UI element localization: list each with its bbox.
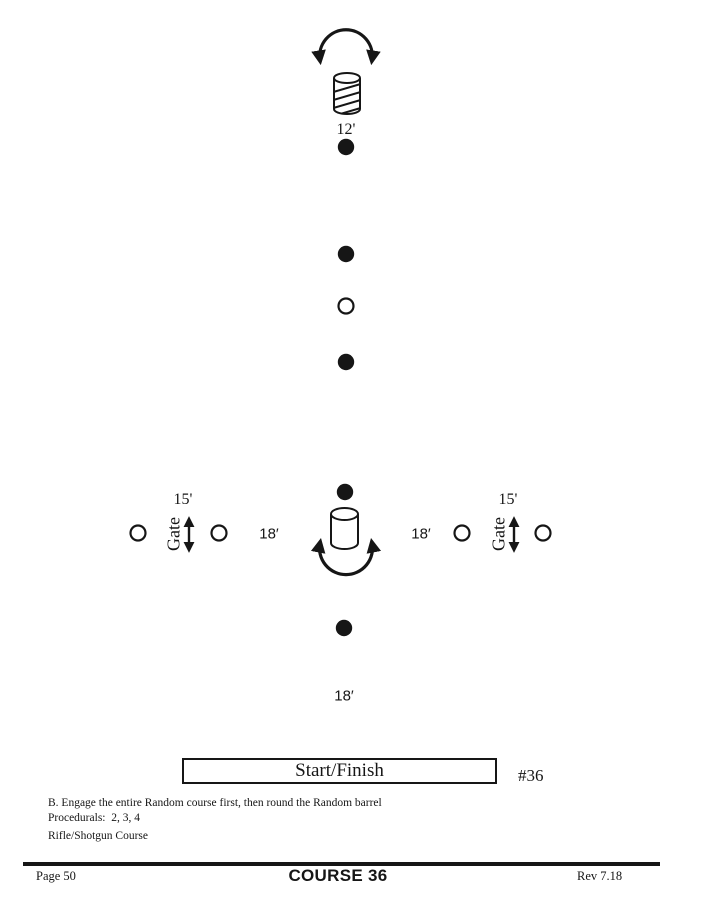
note-procedurals: Procedurals: 2, 3, 4 [48, 812, 140, 824]
left-gate-label: Gate [164, 517, 185, 551]
pole-marker-dot [338, 246, 354, 262]
gate-post [131, 526, 146, 541]
pole-marker-dot [337, 484, 353, 500]
course-number-label: #36 [518, 766, 544, 786]
start-finish-label: Start/Finish [295, 760, 384, 781]
left-spacing-label: 18′ [259, 526, 279, 543]
footer-course-title: COURSE 36 [288, 866, 387, 886]
gate-post [455, 526, 470, 541]
top-barrel-distance-label: 12' [337, 121, 356, 139]
gate-post [536, 526, 551, 541]
rotation-arrow-top-icon [320, 30, 373, 60]
bottom-spacing-label: 18′ [334, 688, 354, 705]
right-gate-width-label: 15' [499, 491, 518, 509]
note-instruction: B. Engage the entire Random course first… [48, 797, 382, 809]
start-finish-box: Start/Finish [182, 758, 497, 784]
center-barrel-icon [331, 508, 358, 549]
course-page: 12' 15' Gate 15' Gate 18′ 18′ 18′ Start/… [0, 0, 701, 906]
left-gate-width-label: 15' [174, 491, 193, 509]
gate-post [212, 526, 227, 541]
right-gate-label: Gate [489, 517, 510, 551]
striped-barrel-icon [330, 73, 364, 125]
open-pole-marker [339, 299, 354, 314]
footer-revision: Rev 7.18 [577, 869, 622, 884]
note-course-type: Rifle/Shotgun Course [48, 830, 148, 842]
pole-marker-dot [338, 354, 354, 370]
footer-page-number: Page 50 [36, 869, 76, 884]
right-spacing-label: 18′ [411, 526, 431, 543]
pole-marker-dot [338, 139, 354, 155]
pole-marker-dot [336, 620, 352, 636]
